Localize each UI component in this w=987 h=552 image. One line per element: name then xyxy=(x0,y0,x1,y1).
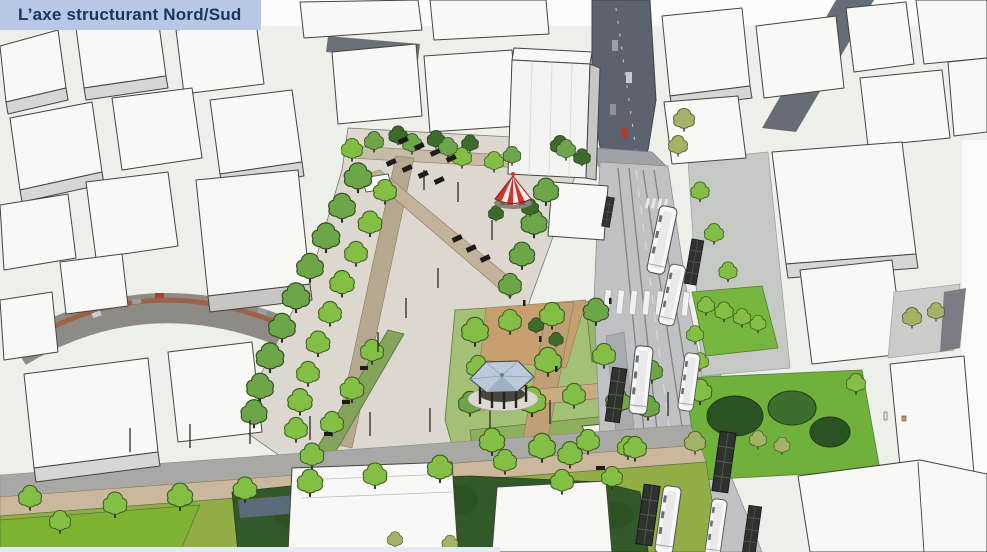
urban-3d-render xyxy=(0,0,987,552)
slide-bottom-edge xyxy=(0,547,500,552)
slide: L’axe structurant Nord/Sud xyxy=(0,0,987,552)
slide-title-banner: L’axe structurant Nord/Sud xyxy=(0,0,261,30)
slide-title: L’axe structurant Nord/Sud xyxy=(18,5,241,24)
